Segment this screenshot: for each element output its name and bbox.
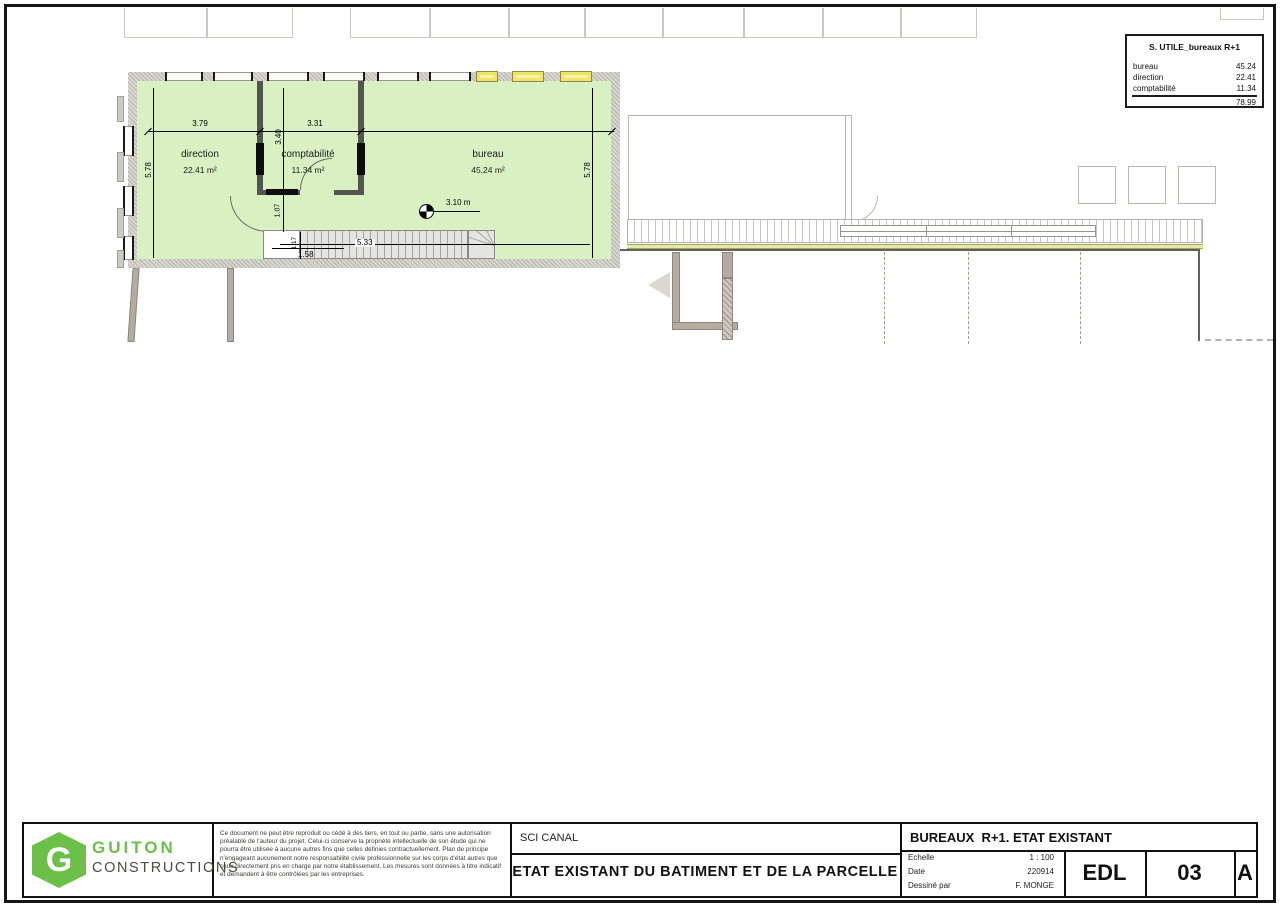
roof-grid-cell — [901, 8, 977, 38]
roof-grid-cell — [350, 8, 430, 38]
dim-compta-width: 3.31 — [300, 120, 330, 128]
rooflight-square — [1178, 166, 1216, 204]
partition-wall — [257, 81, 263, 195]
roof-grid-cell — [823, 8, 901, 38]
exterior-stair-wall — [672, 252, 680, 330]
project-title: ETAT EXISTANT DU BATIMENT ET DE LA PARCE… — [510, 864, 900, 880]
sheet-number: 03 — [1145, 850, 1234, 896]
summary-total-value: 78.99 — [1236, 98, 1256, 107]
window-opening — [378, 72, 418, 81]
company-name-2: CONSTRUCTIONS — [92, 860, 239, 876]
meta-value: 1 : 100 — [1030, 853, 1054, 862]
summary-row: comptabilité 11.34 — [1133, 84, 1256, 95]
post — [227, 268, 234, 342]
wall-stub — [117, 208, 124, 238]
surface-summary-table: S. UTILE_bureaux R+1 bureau 45.24 direct… — [1125, 34, 1264, 108]
title-block-divider — [510, 824, 512, 896]
window-opening — [124, 186, 133, 216]
door-jamb — [357, 143, 365, 175]
window-opening — [214, 72, 252, 81]
roof-grid-cell — [663, 8, 744, 38]
exterior-stair-wall — [722, 252, 733, 278]
dimension-line — [272, 248, 344, 249]
stair-direction-arrow — [648, 272, 670, 298]
summary-row-value: 22.41 — [1236, 73, 1256, 82]
logo-letter: G — [46, 841, 72, 880]
guardrail-post — [926, 225, 927, 237]
drawing-sheet: 3.79 3.31 5.78 5.78 3.40 1.07 1.17 1.58 … — [0, 0, 1280, 907]
door-jamb — [266, 189, 298, 195]
window-opening — [166, 72, 202, 81]
summary-title: S. UTILE_bureaux R+1 — [1127, 42, 1262, 52]
summary-row-value: 45.24 — [1236, 62, 1256, 71]
roof-grid-cell — [744, 8, 823, 38]
guardrail-post — [1011, 225, 1012, 237]
wall-stub — [117, 250, 124, 268]
dimension-line — [148, 131, 614, 132]
window-opening — [430, 72, 470, 81]
dimension-line — [280, 244, 590, 245]
meta-row-dessine-par: Dessiné par F. MONGE — [908, 881, 1054, 894]
room-label-comptabilite: comptabilité — [262, 149, 354, 160]
building-edge-line — [620, 249, 1200, 251]
window-yellow — [476, 71, 498, 82]
axis-dashdot-line — [884, 252, 885, 344]
meta-value: 220914 — [1027, 867, 1054, 876]
logo-cell: G GUITON CONSTRUCTIONS — [24, 824, 212, 896]
window-opening — [324, 72, 364, 81]
dim-left-height: 5.78 — [145, 162, 153, 178]
window-opening — [124, 126, 133, 156]
roof-grid-cell — [1220, 8, 1264, 20]
rooflight-square — [1078, 166, 1116, 204]
room-area-bureau: 45.24 m² — [445, 165, 531, 175]
dim-right-height: 5.78 — [584, 162, 592, 178]
meta-row-echelle: Echelle 1 : 100 — [908, 853, 1054, 866]
wall-stub — [117, 152, 124, 182]
guardrail-symbol — [840, 225, 1096, 237]
dim-hall-depth: 1.07 — [274, 204, 281, 218]
window-opening — [268, 72, 308, 81]
window-yellow — [560, 71, 592, 82]
level-mark-line — [434, 211, 480, 212]
partition-wall — [358, 81, 364, 195]
sheet-title: BUREAUX R+1. ETAT EXISTANT — [910, 830, 1112, 845]
summary-row: direction 22.41 — [1133, 73, 1256, 84]
dimension-line — [283, 88, 284, 195]
summary-row-label: direction — [1133, 73, 1163, 82]
adjacent-building-inner-line — [845, 115, 846, 222]
dim-compta-height: 3.40 — [275, 129, 283, 145]
axis-dashdot-line — [1080, 252, 1081, 344]
wall-stub — [117, 96, 124, 122]
summary-total-row: 78.99 — [1133, 98, 1256, 109]
company-logo-icon: G — [32, 832, 86, 888]
roof-grid-cell — [585, 8, 663, 38]
dim-ceiling-height: 3.10 m — [446, 199, 470, 207]
room-area-direction: 22.41 m² — [160, 165, 240, 175]
legal-disclaimer: Ce document ne peut être reproduit ou cé… — [220, 830, 502, 892]
summary-row-label: bureau — [1133, 62, 1158, 71]
room-area-comptabilite: 11.34 m² — [262, 165, 354, 175]
dim-stair-entry: 1.58 — [298, 251, 314, 259]
dim-stair-run: 5.33 — [355, 239, 375, 247]
window-opening — [124, 236, 133, 260]
roof-grid-cell — [430, 8, 509, 38]
title-block: G GUITON CONSTRUCTIONS Ce document ne pe… — [22, 822, 1258, 898]
summary-row-value: 11.34 — [1237, 84, 1256, 93]
meta-label: Date — [908, 867, 925, 876]
axis-dashdot-line — [968, 252, 969, 344]
meta-label: Dessiné par — [908, 881, 951, 890]
client-name: SCI CANAL — [520, 832, 578, 844]
room-label-direction: direction — [160, 149, 240, 160]
window-yellow — [512, 71, 544, 82]
meta-cell: Echelle 1 : 100 Date 220914 Dessiné par … — [900, 850, 1064, 896]
level-mark-icon — [419, 204, 434, 219]
dimension-line — [283, 195, 284, 232]
summary-row: bureau 45.24 — [1133, 62, 1256, 73]
revision-letter: A — [1234, 850, 1256, 896]
doc-code: EDL — [1064, 850, 1145, 896]
summary-total-rule — [1132, 95, 1257, 97]
summary-row-label: comptabilité — [1133, 84, 1176, 93]
roof-grid-cell — [509, 8, 585, 38]
door-gap — [300, 190, 334, 195]
building-edge-line — [1198, 249, 1200, 341]
exterior-stair-column — [722, 278, 733, 340]
dimension-line — [153, 88, 154, 258]
meta-value: F. MONGE — [1015, 881, 1054, 890]
roof-grid-cell — [124, 8, 207, 38]
meta-label: Echelle — [908, 853, 934, 862]
title-block-divider — [510, 853, 900, 855]
room-label-bureau: bureau — [445, 149, 531, 160]
meta-row-date: Date 220914 — [908, 867, 1054, 880]
company-name: GUITON — [92, 838, 176, 858]
dimension-line — [592, 88, 593, 258]
parcel-boundary-dashed — [1205, 339, 1273, 341]
adjacent-building-outline — [628, 115, 852, 222]
roof-grid-cell — [207, 8, 293, 38]
dim-direction-width: 3.79 — [185, 120, 215, 128]
rooflight-square — [1128, 166, 1166, 204]
